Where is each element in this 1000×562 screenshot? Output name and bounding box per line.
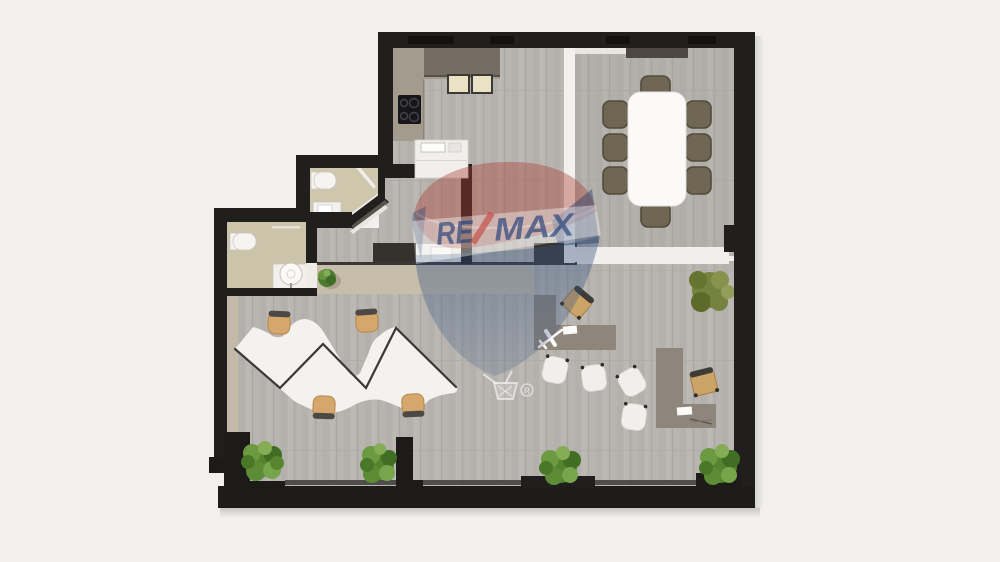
svg-text:RE: RE (435, 213, 476, 252)
svg-text:MAX: MAX (493, 206, 577, 248)
svg-text:R: R (524, 387, 530, 396)
